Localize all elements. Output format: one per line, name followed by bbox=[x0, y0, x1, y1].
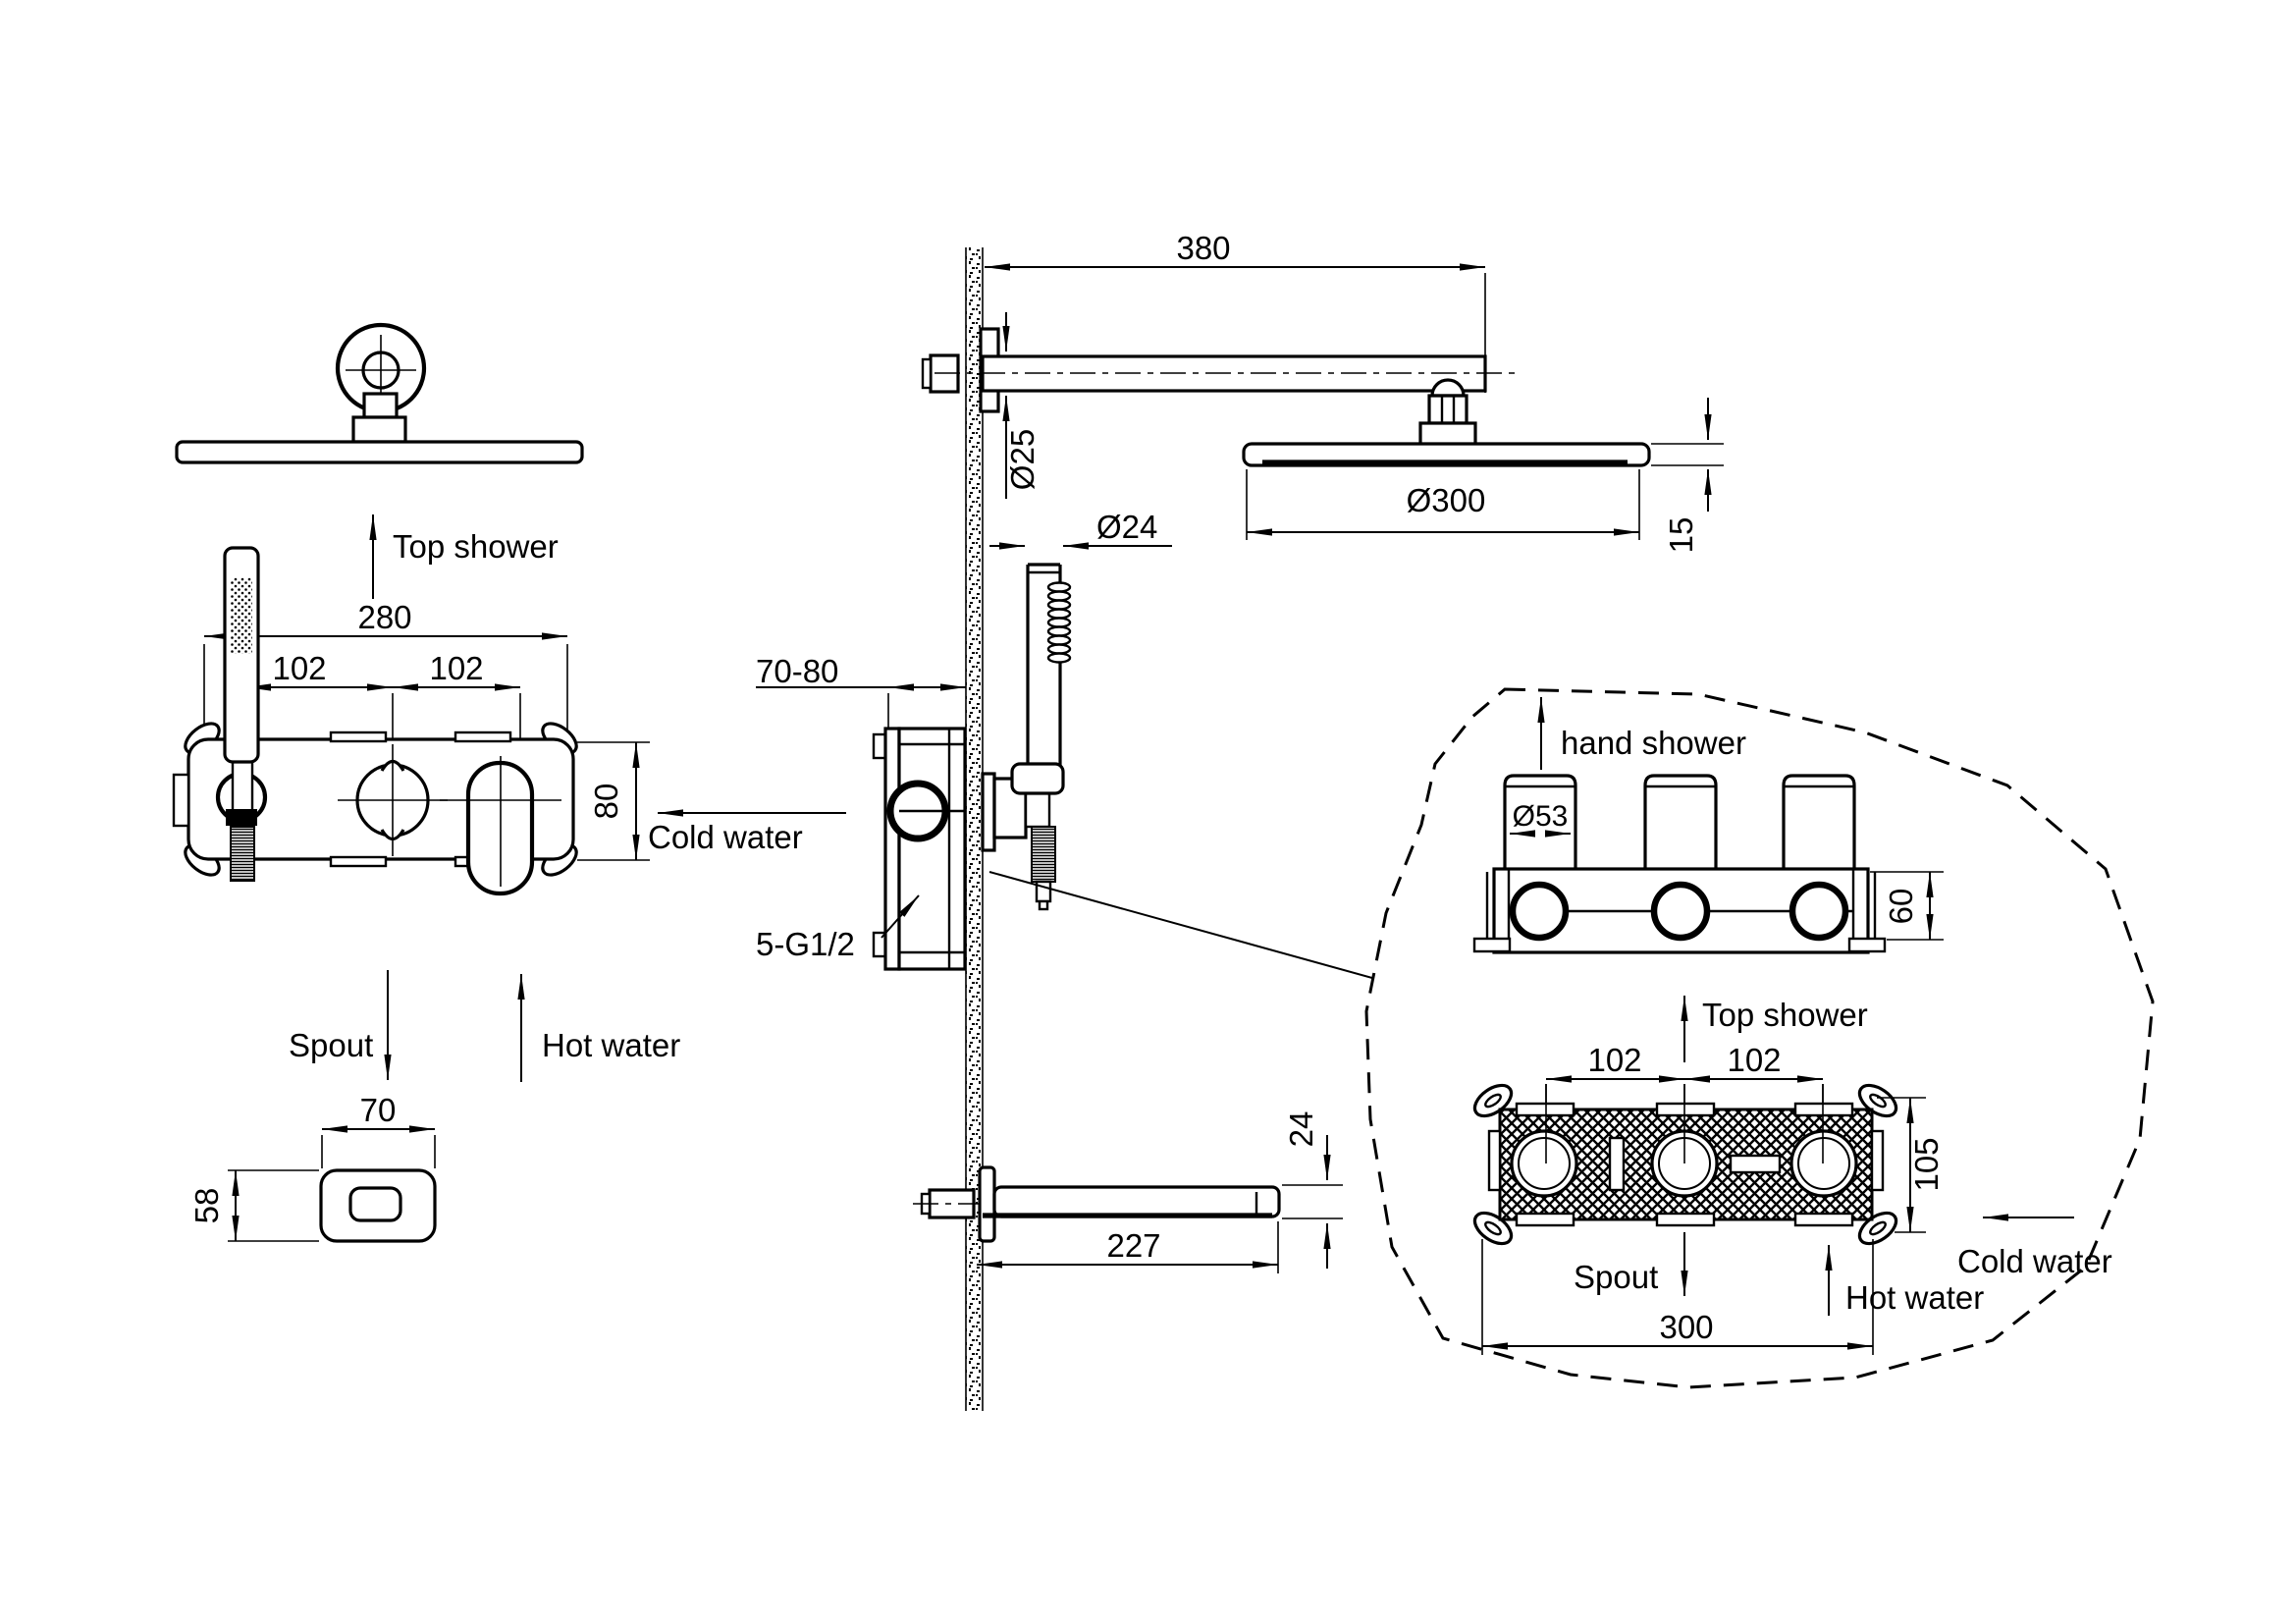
detail-dim-102-left-label: 102 bbox=[1587, 1042, 1641, 1078]
valve-outlet-side bbox=[983, 764, 1063, 909]
dim-53dia-label: Ø53 bbox=[1513, 800, 1569, 833]
dim-300-label: 300 bbox=[1659, 1309, 1713, 1345]
dim-58-label: 58 bbox=[188, 1188, 225, 1224]
hand-shower-thread bbox=[231, 827, 254, 881]
dim-70-80-label: 70-80 bbox=[756, 653, 838, 689]
shower-head-plate bbox=[177, 442, 582, 462]
detail-view: hand shower Ø53 60 bbox=[1366, 689, 2153, 1387]
detail-dim-102-right-label: 102 bbox=[1727, 1042, 1781, 1078]
dim-60-label: 60 bbox=[1883, 889, 1919, 925]
technical-drawing: Top shower 280 102 102 bbox=[0, 0, 2296, 1623]
dim-102-right-label: 102 bbox=[429, 650, 483, 686]
dim-70-label: 70 bbox=[360, 1092, 397, 1128]
dim-24dia-label: Ø24 bbox=[1096, 509, 1157, 545]
head-connector-lower bbox=[353, 417, 405, 442]
detail-leader-line bbox=[989, 872, 1372, 978]
detail-cold-water-label: Cold water bbox=[1957, 1243, 2112, 1279]
dim-227-label: 227 bbox=[1106, 1227, 1160, 1264]
dim-380-label: 380 bbox=[1176, 230, 1230, 266]
hand-shower-side bbox=[1028, 565, 1070, 768]
detail-top-shower-label: Top shower bbox=[1702, 997, 1868, 1033]
dim-300dia-label: Ø300 bbox=[1407, 482, 1486, 518]
dim-105-label: 105 bbox=[1908, 1137, 1945, 1191]
front-view: Top shower 280 102 102 bbox=[174, 325, 846, 1241]
cold-water-label: Cold water bbox=[648, 819, 803, 855]
detail-spout-label: Spout bbox=[1574, 1259, 1658, 1295]
dim-280-label: 280 bbox=[357, 599, 411, 635]
detail-hot-water-label: Hot water bbox=[1845, 1279, 1984, 1316]
top-shower-label: Top shower bbox=[393, 528, 559, 565]
spout-label: Spout bbox=[289, 1027, 373, 1063]
drawing-canvas: Top shower 280 102 102 bbox=[0, 0, 2296, 1623]
spout-face-detail: 70 58 bbox=[188, 1092, 435, 1241]
detail-hand-shower-label: hand shower bbox=[1561, 725, 1746, 761]
hand-shower-spray-face bbox=[231, 577, 252, 654]
dim-102-left-label: 102 bbox=[272, 650, 326, 686]
dim-80-label: 80 bbox=[588, 784, 624, 820]
rough-in-box-side: Ø53 bbox=[1474, 776, 1885, 952]
section-view: 380 Ø25 Ø300 15 Ø24 bbox=[756, 230, 1724, 1411]
thread-callout-label: 5-G1/2 bbox=[756, 926, 855, 962]
detail-bubble-boundary bbox=[1366, 689, 2153, 1387]
head-connector-upper bbox=[364, 394, 397, 417]
rough-in-box-front bbox=[1469, 1079, 1901, 1250]
hot-water-label: Hot water bbox=[542, 1027, 680, 1063]
spout-face-outlet bbox=[350, 1188, 400, 1220]
valve-body-side bbox=[874, 729, 965, 969]
dim-15-label: 15 bbox=[1663, 517, 1699, 554]
dim-25-label: Ø25 bbox=[1004, 429, 1041, 490]
dim-24-label: 24 bbox=[1283, 1111, 1319, 1148]
